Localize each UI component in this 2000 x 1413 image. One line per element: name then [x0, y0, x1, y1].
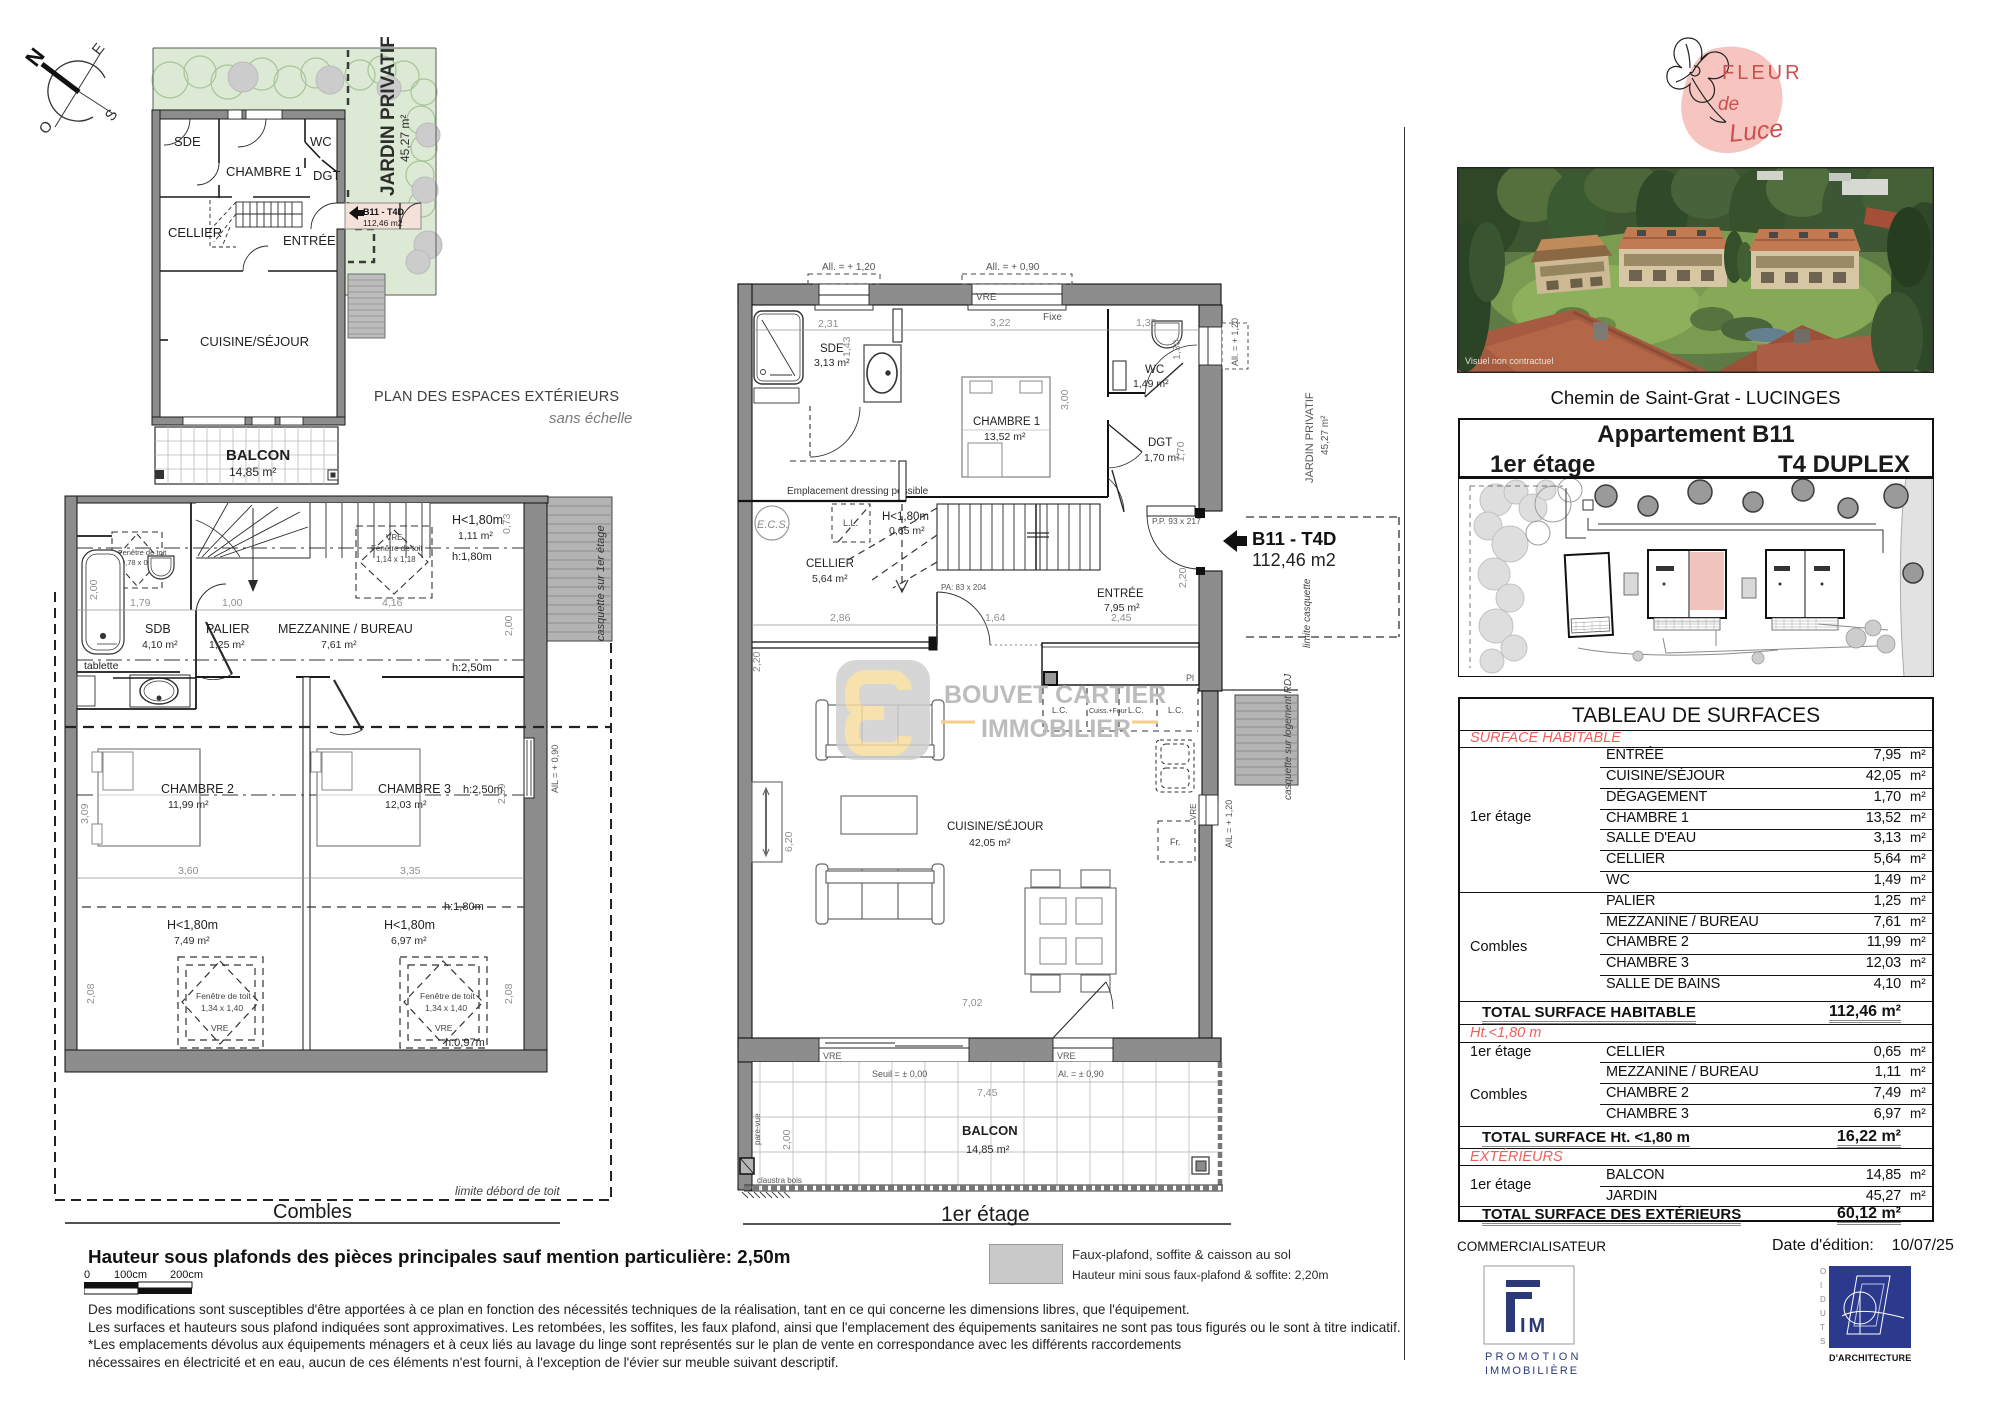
svg-text:42,05 m²: 42,05 m²: [969, 837, 1011, 849]
svg-text:VRE: VRE: [823, 1051, 842, 1061]
svg-text:12,03 m²: 12,03 m²: [385, 799, 427, 811]
svg-text:WC: WC: [1145, 364, 1164, 376]
svg-text:IM: IM: [1520, 1315, 1548, 1337]
svg-text:Seuil = ± 0,00: Seuil = ± 0,00: [872, 1069, 927, 1079]
svg-text:limite débord de toit: limite débord de toit: [455, 1184, 560, 1198]
svg-text:Visuel non contractuel: Visuel non contractuel: [1465, 356, 1553, 366]
svg-text:L.L.: L.L.: [843, 518, 858, 528]
svg-text:VRE: VRE: [386, 533, 402, 542]
svg-text:CELLIER: CELLIER: [806, 558, 854, 570]
svg-text:JARDIN PRIVATIF: JARDIN PRIVATIF: [378, 36, 399, 196]
svg-text:2,86: 2,86: [830, 612, 851, 624]
svg-text:1,34 x 1,40: 1,34 x 1,40: [425, 1003, 467, 1013]
svg-text:AlL = + 0,90: AlL = + 0,90: [550, 745, 560, 793]
svg-text:VRE: VRE: [976, 292, 997, 303]
svg-text:2,00: 2,00: [88, 579, 100, 600]
svg-text:D: D: [1820, 1295, 1826, 1304]
svg-text:CUISINE/SÉJOUR: CUISINE/SÉJOUR: [200, 334, 309, 349]
svg-text:CHAMBRE 2: CHAMBRE 2: [161, 782, 234, 796]
svg-text:CHAMBRE 1: CHAMBRE 1: [973, 416, 1040, 428]
svg-text:PROMOTION: PROMOTION: [1485, 1351, 1582, 1363]
svg-text:200cm: 200cm: [170, 1269, 203, 1281]
svg-text:U: U: [1820, 1309, 1826, 1318]
svg-text:1,00: 1,00: [222, 597, 243, 609]
svg-text:AlL = + 1,20: AlL = + 1,20: [1224, 800, 1234, 848]
svg-text:Fixe: Fixe: [1043, 312, 1062, 323]
svg-text:7,49 m²: 7,49 m²: [174, 935, 210, 947]
svg-text:DGT: DGT: [313, 168, 341, 183]
svg-text:5,64 m²: 5,64 m²: [812, 573, 848, 585]
svg-text:IMMOBILIÈRE: IMMOBILIÈRE: [1485, 1364, 1579, 1377]
svg-text:PA: 83 x 204: PA: 83 x 204: [941, 583, 987, 592]
svg-text:H<1,80m: H<1,80m: [384, 918, 435, 932]
svg-text:4,10 m²: 4,10 m²: [142, 639, 178, 651]
svg-text:BALCON: BALCON: [962, 1123, 1018, 1138]
svg-text:H<1,80m: H<1,80m: [167, 918, 218, 932]
svg-text:ENTRÉE: ENTRÉE: [283, 233, 336, 248]
svg-text:h:1,80m: h:1,80m: [452, 551, 492, 563]
svg-text:FLEUR: FLEUR: [1722, 62, 1803, 84]
svg-text:2,00: 2,00: [781, 1129, 793, 1150]
svg-text:CHAMBRE 1: CHAMBRE 1: [226, 164, 302, 179]
svg-text:1,30: 1,30: [1171, 339, 1183, 360]
svg-text:WC: WC: [310, 134, 332, 149]
svg-text:T: T: [1820, 1323, 1825, 1332]
svg-text:1,79: 1,79: [130, 597, 151, 609]
svg-text:pare-vue: pare-vue: [753, 1113, 762, 1145]
svg-text:VRE: VRE: [435, 1023, 453, 1033]
svg-text:MEZZANINE / BUREAU: MEZZANINE / BUREAU: [278, 622, 413, 636]
svg-text:All. = + 1,20: All. = + 1,20: [1230, 318, 1240, 366]
svg-text:1,70: 1,70: [1175, 441, 1187, 462]
svg-text:sans échelle: sans échelle: [549, 410, 632, 427]
svg-text:2,20: 2,20: [1177, 567, 1189, 588]
svg-text:100cm: 100cm: [114, 1269, 147, 1281]
svg-text:claustra bois: claustra bois: [757, 1176, 802, 1185]
svg-text:2,45: 2,45: [1111, 612, 1132, 624]
svg-text:E: E: [89, 40, 109, 58]
svg-text:CUISINE/SÉJOUR: CUISINE/SÉJOUR: [947, 820, 1044, 833]
svg-text:S: S: [1820, 1337, 1825, 1346]
svg-text:1,14 x 1,18: 1,14 x 1,18: [376, 555, 416, 564]
svg-text:2,08: 2,08: [85, 983, 97, 1004]
svg-text:6,97 m²: 6,97 m²: [391, 935, 427, 947]
svg-text:3,09: 3,09: [79, 803, 91, 824]
svg-text:ENTRÉE: ENTRÉE: [1097, 587, 1144, 600]
svg-text:13,52 m²: 13,52 m²: [984, 431, 1026, 443]
svg-text:I: I: [1820, 1281, 1822, 1290]
svg-text:1,64: 1,64: [985, 612, 1006, 624]
svg-text:2,59: 2,59: [496, 783, 508, 804]
svg-text:S: S: [102, 106, 122, 124]
svg-text:3,60: 3,60: [178, 865, 199, 877]
svg-text:Cuiss.+Four: Cuiss.+Four: [1089, 708, 1128, 715]
svg-text:Combles: Combles: [273, 1201, 352, 1223]
svg-text:h:2,50m: h:2,50m: [452, 662, 492, 674]
svg-text:D'ARCHITECTURE: D'ARCHITECTURE: [1829, 1353, 1911, 1363]
svg-text:H<1,80m: H<1,80m: [882, 511, 929, 523]
svg-text:7,61 m²: 7,61 m²: [321, 639, 357, 651]
svg-text:112,46 m2: 112,46 m2: [363, 218, 403, 228]
svg-text:BALCON: BALCON: [226, 447, 290, 464]
svg-text:7,45: 7,45: [977, 1087, 998, 1099]
svg-text:VRE: VRE: [1189, 804, 1198, 820]
svg-text:P.P. 93 x 217: P.P. 93 x 217: [1152, 516, 1201, 526]
svg-text:Emplacement dressing possible: Emplacement dressing possible: [787, 486, 929, 497]
svg-text:de: de: [1718, 94, 1739, 115]
svg-text:7,02: 7,02: [962, 997, 983, 1009]
svg-text:SDB: SDB: [145, 622, 171, 636]
svg-text:O: O: [1820, 1267, 1826, 1276]
svg-text:limite casquette: limite casquette: [1302, 578, 1313, 648]
svg-text:45,27 m²: 45,27 m²: [398, 115, 412, 162]
svg-text:0,73: 0,73: [501, 513, 513, 534]
svg-text:1,35: 1,35: [1136, 317, 1157, 329]
svg-text:O: O: [36, 118, 57, 138]
svg-text:112,46 m2: 112,46 m2: [1252, 550, 1336, 570]
svg-text:PLAN DES ESPACES EXTÉRIEURS: PLAN DES ESPACES EXTÉRIEURS: [374, 388, 619, 405]
svg-text:Al. = ± 0,90: Al. = ± 0,90: [1058, 1069, 1104, 1079]
svg-text:2,31: 2,31: [818, 318, 839, 330]
svg-text:3,35: 3,35: [400, 865, 421, 877]
svg-text:All. = + 0,90: All. = + 0,90: [986, 262, 1040, 273]
svg-text:L.C.: L.C.: [1168, 705, 1184, 715]
svg-text:Pl: Pl: [1186, 673, 1194, 683]
svg-text:Fr.: Fr.: [1170, 837, 1181, 847]
svg-text:PALIER: PALIER: [206, 622, 250, 636]
svg-text:h:1,80m: h:1,80m: [444, 901, 484, 913]
svg-text:CHAMBRE 3: CHAMBRE 3: [378, 782, 451, 796]
svg-text:casquette sur logement RDJ: casquette sur logement RDJ: [1283, 673, 1294, 800]
svg-text:1,34 x 1,40: 1,34 x 1,40: [201, 1003, 243, 1013]
svg-text:4,16: 4,16: [382, 597, 403, 609]
svg-text:SDE: SDE: [174, 134, 201, 149]
svg-text:JARDIN PRIVATIF: JARDIN PRIVATIF: [1304, 392, 1316, 483]
svg-text:E.C.S.: E.C.S.: [757, 519, 789, 531]
svg-text:BOUVET CARTIER: BOUVET CARTIER: [944, 681, 1166, 709]
svg-text:CELLIER: CELLIER: [168, 225, 222, 240]
svg-text:6,20: 6,20: [783, 831, 795, 852]
svg-text:1,25 m²: 1,25 m²: [209, 639, 245, 651]
svg-text:11,99 m²: 11,99 m²: [168, 799, 209, 811]
svg-text:Fenêtre de toit: Fenêtre de toit: [196, 991, 251, 1001]
svg-text:B11 - T4D: B11 - T4D: [1252, 528, 1336, 549]
svg-text:2,00: 2,00: [503, 615, 515, 636]
svg-text:IMMOBILIER: IMMOBILIER: [981, 715, 1131, 743]
svg-text:1,43: 1,43: [841, 336, 853, 357]
svg-text:tablette: tablette: [84, 660, 119, 672]
svg-text:casquette sur 1er étage: casquette sur 1er étage: [595, 525, 607, 641]
svg-text:Fenêtre de toit: Fenêtre de toit: [420, 991, 475, 1001]
svg-text:H<1,80m: H<1,80m: [452, 513, 503, 527]
svg-text:45,27 m²: 45,27 m²: [1320, 415, 1331, 455]
svg-text:3,13 m²: 3,13 m²: [814, 357, 850, 369]
svg-text:DGT: DGT: [1148, 437, 1172, 449]
svg-text:B11 - T4D: B11 - T4D: [363, 207, 405, 217]
svg-text:3,00: 3,00: [1059, 389, 1071, 410]
svg-text:Luce: Luce: [1728, 114, 1785, 148]
svg-text:2,20: 2,20: [751, 651, 763, 672]
svg-text:0,65 m²: 0,65 m²: [889, 525, 925, 537]
svg-text:1er étage: 1er étage: [941, 1203, 1030, 1226]
svg-text:All. = + 1,20: All. = + 1,20: [822, 262, 876, 273]
svg-text:3,22: 3,22: [990, 317, 1011, 329]
svg-text:h:0,97m: h:0,97m: [445, 1037, 485, 1049]
svg-text:VRE: VRE: [1057, 1051, 1076, 1061]
svg-text:1,11 m²: 1,11 m²: [458, 530, 493, 542]
svg-text:VRE: VRE: [211, 1023, 229, 1033]
svg-text:14,85 m²: 14,85 m²: [229, 465, 276, 479]
svg-text:14,85 m²: 14,85 m²: [966, 1144, 1010, 1156]
svg-text:0: 0: [84, 1269, 90, 1281]
svg-text:2,08: 2,08: [503, 983, 515, 1004]
